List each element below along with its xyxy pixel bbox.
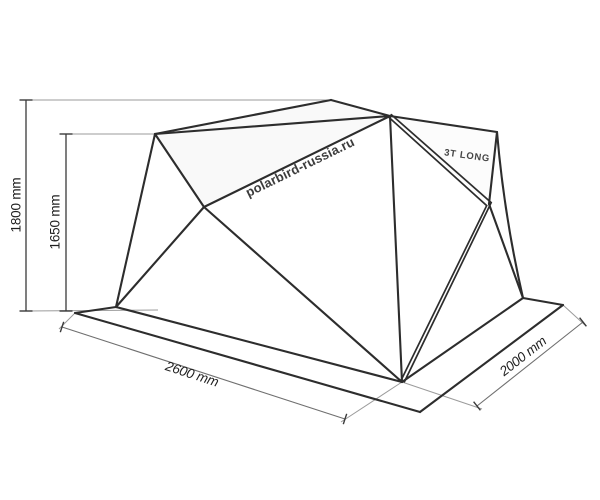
tent-skirt-front-left [75, 313, 420, 412]
tent-edge-left [116, 134, 155, 307]
dimension-label-2000: 2000 mm [496, 333, 549, 379]
tent-face-top-left [155, 100, 390, 207]
tent-skirt-corner-right [523, 298, 563, 305]
tent-strut-hub-baseleft [116, 207, 204, 307]
tent-strut-apex-front [390, 116, 402, 382]
dimension-line-2000 [477, 322, 583, 406]
tent-edge-right [497, 132, 523, 298]
dimension-label-1650: 1650 mm [48, 195, 63, 250]
extension-width-right [341, 382, 402, 422]
dimension-label-1800: 1800 mm [9, 178, 24, 233]
tent-edge-right-lower [489, 204, 523, 298]
tent-dimension-diagram: 1800 mm 1650 mm 2600 mm 2000 mm polarbir… [0, 0, 600, 500]
tent-diagram-canvas: 1800 mm 1650 mm 2600 mm 2000 mm polarbir… [0, 0, 600, 500]
dimension-label-2600: 2600 mm [163, 358, 221, 390]
